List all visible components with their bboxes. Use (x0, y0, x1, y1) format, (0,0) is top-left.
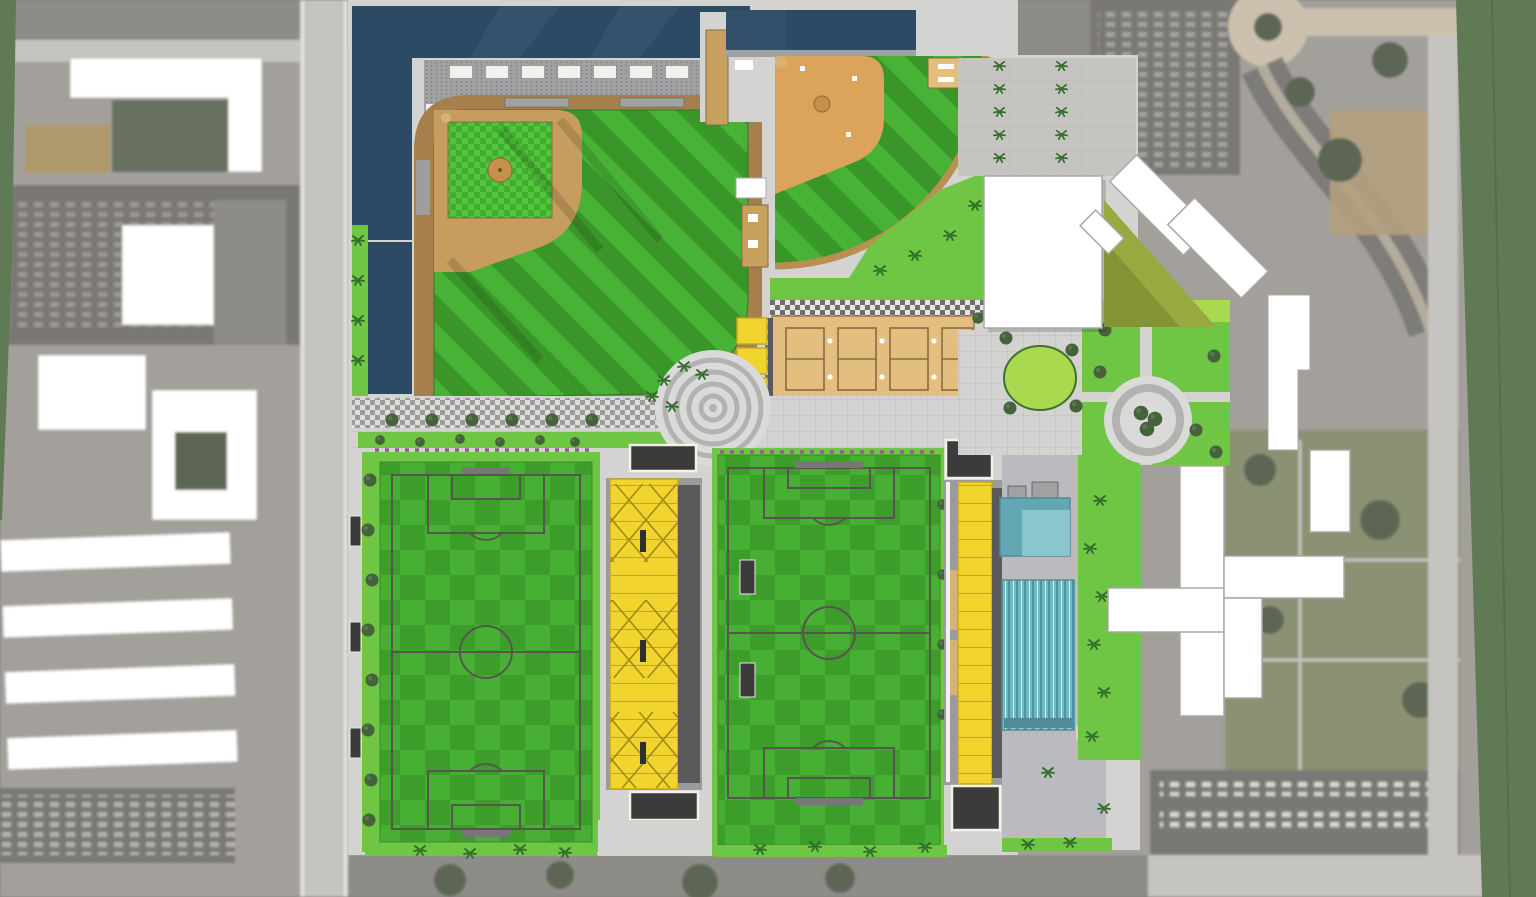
bleacher (350, 622, 361, 652)
tree (364, 474, 377, 487)
building-footprint (38, 355, 146, 430)
south-verge (770, 278, 960, 300)
tree (362, 724, 375, 737)
bench (640, 640, 646, 662)
building-wing (1108, 588, 1224, 632)
roof-seam (726, 10, 786, 50)
goal (462, 467, 510, 474)
plaza-center (709, 404, 717, 412)
shade-walk (768, 318, 773, 402)
parked-trucks (0, 795, 235, 855)
building-apron (726, 50, 916, 57)
dark-roof (214, 200, 286, 345)
tree (972, 312, 983, 323)
recreation-pool-shallow (1022, 510, 1070, 556)
shade-cabana (737, 318, 767, 344)
picnic-table (938, 77, 954, 82)
parked-cars (1160, 812, 1450, 830)
base (852, 76, 857, 81)
tree (362, 624, 375, 637)
skylight (748, 240, 758, 248)
home-plate-circle (441, 113, 451, 123)
tree (1208, 350, 1221, 363)
lap-pool-shelf (1004, 718, 1072, 728)
trees (1360, 500, 1400, 540)
gate-building (736, 178, 766, 198)
shrub (535, 435, 545, 445)
trees (1285, 77, 1315, 107)
entry-pavilion (630, 445, 696, 471)
dugout (620, 98, 684, 107)
trees (825, 863, 855, 893)
trees (1372, 42, 1408, 78)
canopy-seams (958, 482, 992, 784)
soccer-field-west (350, 450, 600, 858)
parked-cars (1160, 778, 1450, 796)
kiosk (735, 60, 753, 70)
bleacher (350, 728, 361, 758)
canopy-bracing (610, 600, 678, 678)
tree (466, 414, 479, 427)
tree (1140, 422, 1155, 437)
tree (363, 814, 376, 827)
bench (640, 530, 646, 552)
south-verge (715, 845, 947, 857)
skylight (748, 214, 758, 222)
picnic-table (938, 64, 954, 69)
tree (1210, 446, 1223, 459)
tree (365, 774, 378, 787)
trees (546, 861, 574, 889)
base (800, 66, 805, 71)
tree (1134, 406, 1149, 421)
tree (1094, 366, 1107, 379)
shrub (495, 437, 505, 447)
courtyard (175, 432, 227, 490)
east-road (1428, 36, 1458, 860)
industrial-roofs (0, 0, 310, 40)
practice-mound (814, 96, 830, 112)
trees (434, 864, 466, 896)
curb (344, 0, 347, 897)
tree (362, 524, 375, 537)
tree (546, 414, 559, 427)
goal (795, 461, 863, 468)
building-footprint (122, 225, 214, 325)
tree (1000, 332, 1013, 345)
shrub (415, 437, 425, 447)
south-road (348, 855, 1148, 897)
south-road (1148, 855, 1536, 897)
fieldhouse-roof (984, 176, 1102, 328)
entry-pavilion (630, 792, 698, 820)
building-wing (1310, 450, 1350, 532)
tree (1066, 344, 1079, 357)
score-tower (706, 30, 728, 125)
trees (1244, 454, 1276, 486)
building-wing (1224, 556, 1344, 598)
soccer-field-east (712, 448, 948, 857)
building-east-bay (678, 485, 700, 783)
trees (1318, 138, 1362, 182)
tree (366, 674, 379, 687)
tree (506, 414, 519, 427)
practice-home-circle (775, 56, 787, 68)
site-plan-rendering (0, 0, 1536, 897)
tree (426, 414, 439, 427)
bleacher (350, 516, 361, 546)
curb (301, 0, 304, 897)
courtyard-trees (112, 100, 228, 172)
shrub (570, 437, 580, 447)
tree (1190, 424, 1203, 437)
bullpen (416, 160, 430, 215)
rubber (498, 168, 502, 172)
bleacher (740, 560, 755, 594)
east-west-road (1300, 8, 1458, 36)
dugout (505, 98, 569, 107)
building-wing (1224, 598, 1262, 698)
tan-roof-building (25, 125, 110, 173)
event-lawn-circle (1004, 346, 1076, 410)
tree (586, 414, 599, 427)
lap-pool (1002, 580, 1074, 730)
base (846, 132, 851, 137)
west-planting-strip (352, 225, 368, 405)
shrub (375, 435, 385, 445)
goal (462, 830, 510, 837)
event-lawn-plaza (958, 330, 1083, 455)
entry-pavilion (952, 786, 1000, 830)
roundabout-island (1254, 13, 1282, 41)
site-plan-canvas (0, 0, 1536, 897)
tree (386, 414, 399, 427)
pitch-turf (718, 455, 940, 845)
parking-stalls (958, 58, 1136, 176)
bleacher (740, 663, 755, 697)
stadium-annex-roof (366, 242, 412, 394)
roof-block (1010, 0, 1095, 58)
tree (1004, 402, 1017, 415)
shrub (455, 434, 465, 444)
goal (795, 798, 863, 805)
bench (640, 742, 646, 764)
west-street (300, 0, 348, 897)
tree (1070, 400, 1083, 413)
south-verge (1002, 838, 1112, 852)
tree (366, 574, 379, 587)
west-wall (946, 482, 950, 782)
